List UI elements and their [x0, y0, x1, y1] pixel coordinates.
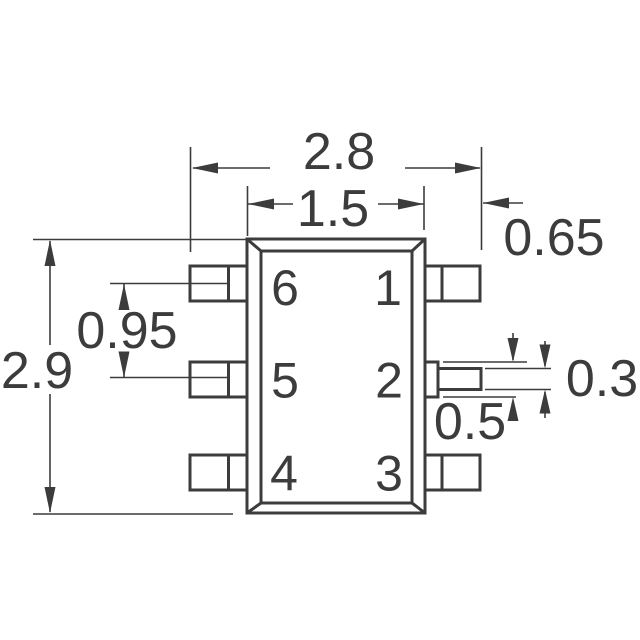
- pin-number-1: 1: [374, 260, 402, 316]
- arrowhead-down: [508, 338, 519, 362]
- arrowhead-up: [45, 240, 56, 266]
- dimension-label-lead-pitch: 0.95: [76, 302, 177, 360]
- lead-pin2-stub: [425, 362, 438, 397]
- dimension-body-width: 1.5: [248, 180, 425, 238]
- dimension-lead-width: 0.5: [434, 333, 527, 451]
- pin-number-5: 5: [271, 353, 299, 409]
- dimension-label-overall-width: 2.8: [303, 123, 375, 181]
- arrowhead-right: [398, 199, 424, 210]
- package-leads: [190, 266, 481, 490]
- arrowhead-left: [483, 198, 509, 209]
- pin-number-4: 4: [270, 446, 298, 502]
- dimension-edge-to-lead: 0.65: [483, 198, 605, 268]
- dimension-label-lead-thickness: 0.3: [566, 350, 638, 408]
- dimension-lead-thickness: 0.3: [485, 341, 638, 418]
- lead-pin4: [190, 455, 247, 490]
- arrowhead-up: [508, 397, 519, 421]
- arrowhead-down: [540, 345, 551, 369]
- dimension-label-body-width: 1.5: [297, 180, 369, 238]
- dimension-label-lead-width: 0.5: [434, 393, 506, 451]
- lead-pin1: [425, 266, 480, 301]
- drawing-canvas: 1 2 3 4 5 6 2.8 1.5 0.65: [0, 0, 640, 640]
- lead-pin5: [190, 362, 247, 397]
- package-outline-drawing: 1 2 3 4 5 6 2.8 1.5 0.65: [0, 0, 640, 640]
- arrowhead-up: [540, 390, 551, 414]
- dimension-label-edge-to-lead: 0.65: [503, 209, 604, 267]
- pin-number-6: 6: [271, 260, 299, 316]
- body-chamfer-top-left: [247, 239, 261, 251]
- lead-pin3: [425, 455, 480, 490]
- lead-pin2-tip: [438, 369, 481, 390]
- pin-number-2: 2: [375, 353, 403, 409]
- dimension-label-overall-height: 2.9: [1, 342, 73, 400]
- arrowhead-left: [248, 199, 274, 210]
- arrowhead-left: [192, 163, 218, 174]
- arrowhead-right: [455, 163, 481, 174]
- pin-number-3: 3: [375, 446, 403, 502]
- pin-numbers: 1 2 3 4 5 6: [270, 260, 403, 502]
- body-chamfer-top-right: [412, 239, 425, 251]
- arrowhead-down: [45, 487, 56, 513]
